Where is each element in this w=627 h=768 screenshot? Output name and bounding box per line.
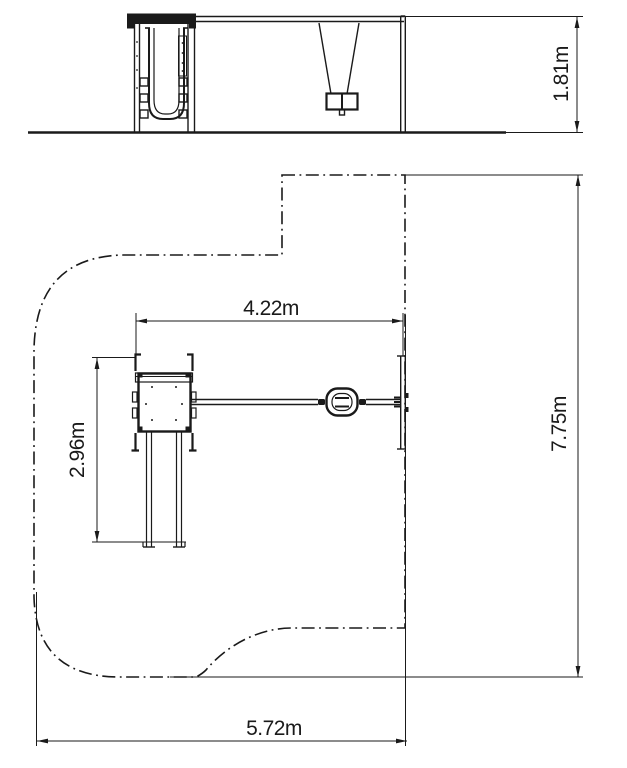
dim-zone-width-label: 5.72m xyxy=(246,717,302,740)
plan-view: 4.22m 2.96m 7.75m 5.72m xyxy=(34,175,583,746)
elevation-view: 1.81m xyxy=(28,14,583,133)
tower-elevation xyxy=(127,14,196,133)
dim-span: 4.22m xyxy=(136,297,403,358)
dim-depth-label: 2.96m xyxy=(66,422,89,478)
technical-drawing: 1.81m xyxy=(0,0,627,768)
swing-elevation xyxy=(319,23,359,115)
swing-seat xyxy=(327,94,358,116)
swing-beam xyxy=(195,17,583,22)
slide-plan xyxy=(143,432,185,548)
tower-plan xyxy=(132,355,197,451)
beam-plan xyxy=(191,399,401,405)
dim-height-arrow-top xyxy=(575,17,580,28)
chute-side-plate xyxy=(179,36,187,76)
chain-link-left xyxy=(318,399,325,405)
ladder-rungs xyxy=(140,78,187,118)
tower-post-right xyxy=(188,24,195,132)
drawing-sheet: 1.81m xyxy=(0,0,627,768)
tower-roof xyxy=(127,14,196,29)
swing-chains xyxy=(319,23,359,94)
dim-zone-width: 5.72m xyxy=(37,315,408,746)
slide-chute xyxy=(145,28,188,119)
dim-depth: 2.96m xyxy=(66,358,186,543)
dim-height-label: 1.81m xyxy=(550,46,573,102)
chain-link-right xyxy=(359,399,366,405)
dim-zone-length-label: 7.75m xyxy=(548,396,571,452)
frame-plan xyxy=(394,356,409,449)
dim-height: 1.81m xyxy=(550,17,579,132)
dim-zone-length: 7.75m xyxy=(170,175,583,677)
frame-post xyxy=(401,16,406,132)
safety-zone-outline xyxy=(34,175,405,677)
tower-post-left xyxy=(135,24,140,132)
dim-span-label: 4.22m xyxy=(243,297,299,320)
seat-plan xyxy=(327,389,358,416)
dim-height-arrow-bottom xyxy=(575,121,580,132)
